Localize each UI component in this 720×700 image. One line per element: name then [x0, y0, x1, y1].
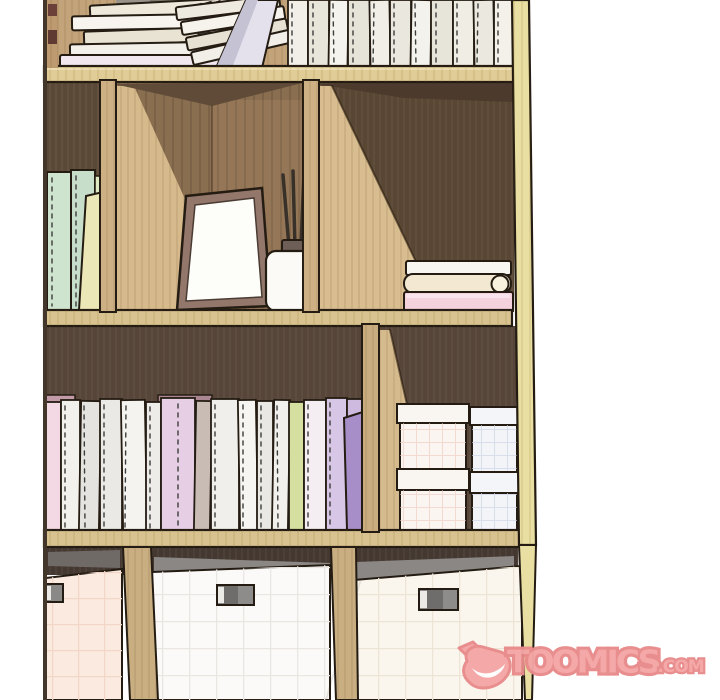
book-spine: [431, 0, 453, 71]
shelf-left-edge: [43, 0, 47, 700]
storage-box-texture: [472, 425, 517, 472]
left-frame-patch: [48, 30, 57, 44]
book-spine: [100, 399, 122, 532]
book-spine: [288, 0, 308, 71]
book-spine: [257, 401, 273, 532]
book-spine: [79, 401, 101, 532]
rolled-mat-end: [492, 276, 509, 293]
storage-box-lid: [397, 404, 469, 423]
shelf-divider-texture: [362, 324, 379, 532]
book-spine: [289, 402, 304, 532]
webtoon-panel: TOOMICSTOOMICS .com.com: [0, 0, 720, 700]
book-spine: [328, 0, 348, 71]
bin-handle-highlight: [218, 587, 224, 603]
bin-handle-highlight: [420, 591, 427, 608]
book-spine: [494, 0, 513, 71]
storage-box-texture: [472, 493, 517, 533]
book-spine: [238, 400, 258, 532]
bin-handle-slot: [427, 590, 443, 609]
picture-frame-inner: [186, 198, 262, 301]
book-spine: [146, 402, 161, 532]
bookshelf-illustration: [0, 0, 720, 700]
storage-box-texture: [400, 423, 466, 471]
left-frame-patch: [48, 4, 57, 16]
bin-handle-slot: [224, 586, 238, 604]
shelf-divider-texture: [303, 80, 319, 312]
book-spine: [121, 400, 147, 532]
shelf-board-texture: [44, 530, 526, 547]
book-spine: [61, 400, 80, 532]
book-spine: [194, 401, 212, 532]
book-spine: [453, 0, 474, 71]
book-spine: [272, 400, 290, 532]
storage-box-lid: [397, 469, 469, 490]
storage-box-texture: [400, 490, 466, 533]
storage-box-lid: [470, 472, 519, 493]
book-spine: [410, 0, 431, 71]
bottom-gray-band-left: [48, 550, 120, 568]
bin-handle-highlight: [47, 586, 51, 600]
book-spine: [348, 0, 370, 71]
folded-towel-highlight: [406, 294, 510, 298]
book-spine: [304, 400, 326, 532]
book-spine: [47, 172, 71, 312]
book-spine: [308, 0, 329, 71]
storage-bin-texture: [354, 566, 522, 700]
storage-box-lid: [470, 407, 519, 425]
shelf-divider-texture: [100, 80, 116, 312]
incense-stick: [293, 171, 295, 247]
stacked-book: [406, 261, 511, 275]
book-spine: [46, 402, 61, 532]
book-spine: [390, 0, 411, 71]
book-spine: [211, 399, 239, 532]
